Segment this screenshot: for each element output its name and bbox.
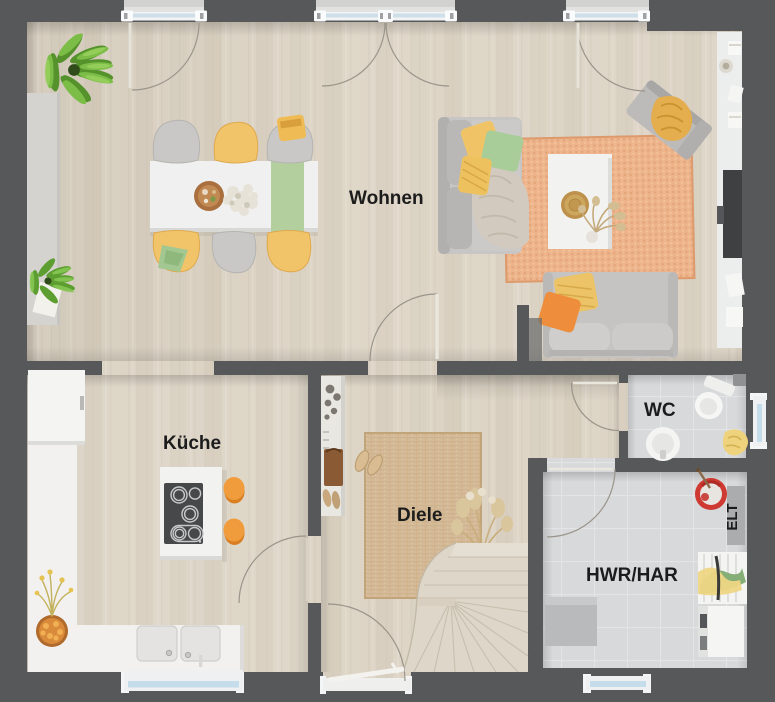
svg-text:Diele: Diele <box>397 505 442 526</box>
svg-text:Wohnen: Wohnen <box>349 188 424 209</box>
svg-text:HWR/HAR: HWR/HAR <box>586 565 678 586</box>
svg-text:Küche: Küche <box>163 433 221 454</box>
svg-text:WC: WC <box>644 400 676 421</box>
svg-text:ELT: ELT <box>724 503 741 530</box>
